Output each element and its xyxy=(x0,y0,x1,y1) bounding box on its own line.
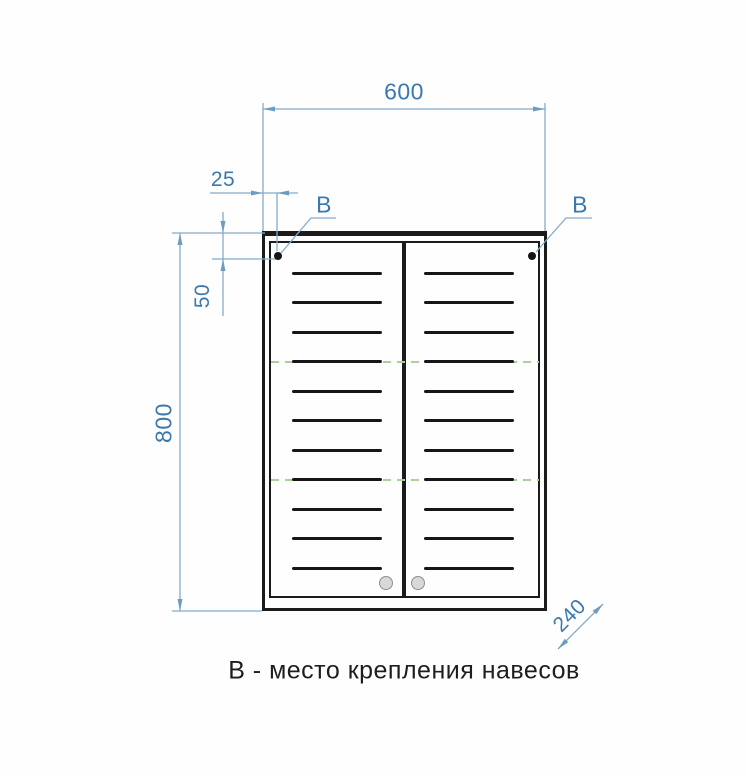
door-slat xyxy=(292,331,382,334)
door-slat xyxy=(424,419,514,422)
leader-line-left xyxy=(281,218,336,253)
door-slat xyxy=(424,508,514,511)
technical-drawing-canvas: 600 25 50 800 240 В В В - место креплени… xyxy=(0,0,746,776)
dimension-arrowheads xyxy=(178,107,604,650)
door-slat xyxy=(292,419,382,422)
dim-offset-x-label: 25 xyxy=(211,168,235,192)
mount-point-left-dot xyxy=(274,252,282,260)
door-slat xyxy=(292,567,382,570)
door-slat xyxy=(292,449,382,452)
door-slat xyxy=(292,272,382,275)
dim-offset-y-label: 50 xyxy=(191,284,215,308)
door-slat xyxy=(424,301,514,304)
door-slat xyxy=(292,301,382,304)
door-slat xyxy=(424,537,514,540)
door-slat xyxy=(292,390,382,393)
dim-width-label: 600 xyxy=(384,79,424,106)
door-slat xyxy=(424,567,514,570)
door-slat xyxy=(424,331,514,334)
door-slat xyxy=(424,360,514,363)
door-slat xyxy=(292,478,382,481)
mount-point-right-dot xyxy=(528,252,536,260)
door-slat xyxy=(292,537,382,540)
door-slat xyxy=(424,390,514,393)
door-slat xyxy=(292,360,382,363)
mount-point-left-label: В xyxy=(316,192,332,219)
mount-point-right-label: В xyxy=(572,192,588,219)
door-handle-left xyxy=(379,576,393,590)
dim-height-label: 800 xyxy=(151,403,178,443)
door-slat xyxy=(424,478,514,481)
door-slat xyxy=(424,272,514,275)
drawing-caption: В - место крепления навесов xyxy=(228,657,580,686)
door-slat xyxy=(292,508,382,511)
door-handle-right xyxy=(411,576,425,590)
door-slat xyxy=(424,449,514,452)
